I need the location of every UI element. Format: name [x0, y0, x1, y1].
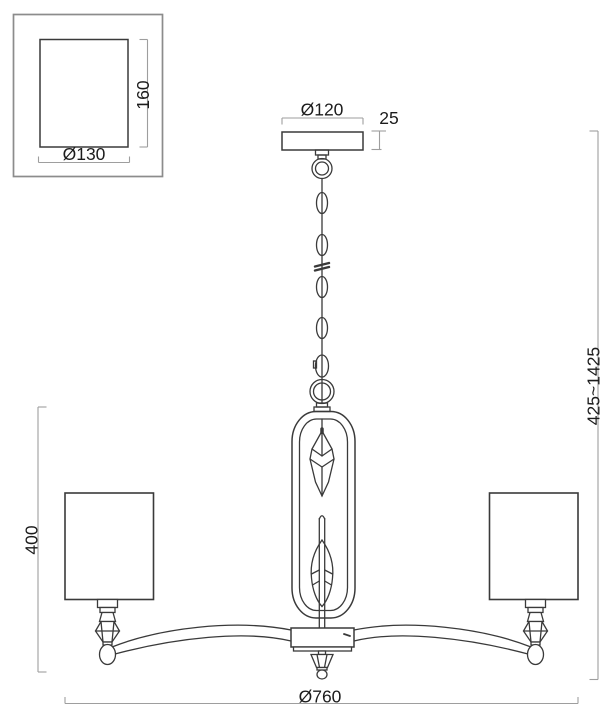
finial-cone: [311, 655, 333, 668]
shade-detail-outline: [40, 40, 128, 148]
dim-canopy-height: [372, 131, 387, 150]
hub-and-finial: [291, 628, 354, 679]
body-capsule-outer: [292, 412, 355, 619]
right-cup: [528, 613, 544, 622]
label-canopy-diameter: Ø120: [301, 100, 344, 120]
canopy-plate: [282, 132, 363, 150]
drawing-layer: [14, 15, 579, 680]
canopy: [282, 132, 363, 179]
leaf-facet: [313, 581, 320, 585]
right-teardrop: [528, 645, 544, 665]
body-capsule-inner: [300, 419, 348, 611]
lower-crystal: [311, 516, 333, 629]
canopy-ring-inner: [316, 162, 329, 175]
left-teardrop: [100, 645, 116, 665]
right-socket: [526, 600, 546, 608]
right-arm-bottom-edge: [354, 636, 528, 654]
label-shade-diameter: Ø130: [63, 144, 106, 164]
leaf-facet: [325, 581, 332, 585]
crystal-facet: [310, 459, 334, 467]
body-frame: [292, 403, 355, 629]
left-cup: [100, 613, 116, 622]
upper-crystal: [310, 419, 334, 496]
left-shade-assembly: [65, 493, 154, 665]
finial-ball: [317, 670, 327, 679]
chain-break-mark: [315, 267, 329, 271]
left-shade: [65, 493, 154, 600]
label-fixture-diameter: Ø760: [299, 687, 342, 707]
chandelier-drawing: Ø130 160 Ø120 25 425~1425 400 Ø760: [0, 0, 611, 720]
dimension-lines: [38, 40, 598, 704]
left-socket: [98, 600, 118, 608]
left-socket-neck: [100, 608, 115, 613]
left-crystal-diamond: [96, 622, 120, 643]
hub-block: [291, 628, 354, 647]
leaf-facet: [325, 570, 333, 574]
right-shade: [490, 493, 579, 600]
left-arm-top-edge: [112, 625, 291, 647]
technical-drawing-canvas: Ø130 160 Ø120 25 425~1425 400 Ø760: [0, 0, 611, 720]
label-overall-height: 425~1425: [584, 347, 604, 425]
rod-top: [319, 516, 324, 519]
label-canopy-height: 25: [379, 108, 398, 128]
chain: [310, 179, 334, 404]
leaf-crystal-outline: [311, 540, 333, 607]
leaf-facet: [312, 570, 320, 574]
label-shade-height: 160: [133, 80, 153, 109]
label-body-height: 400: [22, 525, 42, 554]
chain-break-mark: [315, 263, 329, 267]
right-crystal-diamond: [524, 622, 548, 643]
right-socket-neck: [528, 608, 543, 613]
left-arm-bottom-edge: [115, 636, 291, 654]
right-shade-assembly: [490, 493, 579, 665]
